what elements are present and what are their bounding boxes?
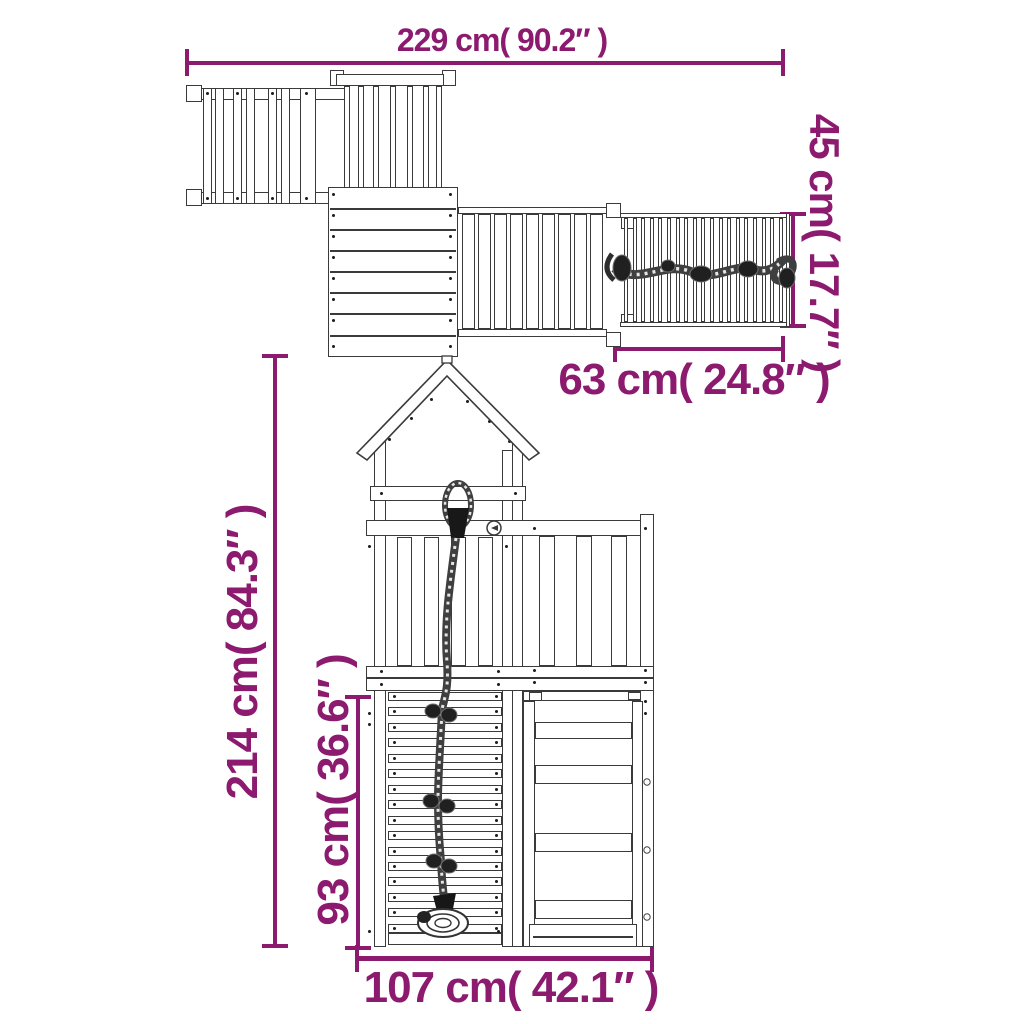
rope-pulley	[447, 508, 469, 538]
bolt	[644, 779, 650, 785]
playset-dimension-diagram: 229 cm( 90.2″ ) 45 cm( 17.7″ ) 63 cm( 24…	[0, 0, 1024, 1024]
bolt	[644, 914, 650, 920]
structure-art	[0, 0, 1024, 1024]
roof-apex-cap	[442, 356, 452, 363]
roof	[357, 360, 539, 460]
rope-plan	[607, 254, 795, 288]
bolt	[644, 847, 650, 853]
rope-front	[417, 483, 471, 937]
swing-disc	[417, 909, 468, 937]
